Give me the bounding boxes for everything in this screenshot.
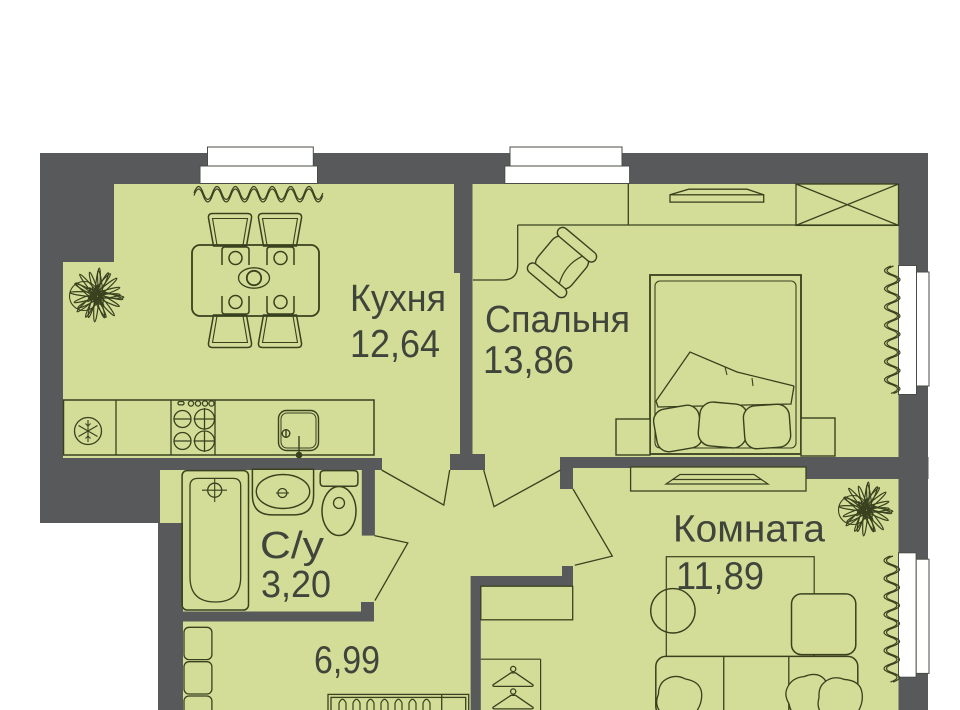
svg-text:Комната: Комната: [673, 509, 826, 551]
svg-text:С/у: С/у: [260, 525, 324, 567]
svg-text:11,89: 11,89: [676, 555, 764, 598]
svg-text:13,86: 13,86: [483, 339, 574, 382]
svg-text:Спальня: Спальня: [485, 299, 630, 341]
svg-text:Кухня: Кухня: [350, 278, 446, 320]
svg-text:3,20: 3,20: [261, 564, 331, 606]
svg-text:6,99: 6,99: [314, 639, 380, 682]
svg-text:12,64: 12,64: [350, 323, 440, 366]
